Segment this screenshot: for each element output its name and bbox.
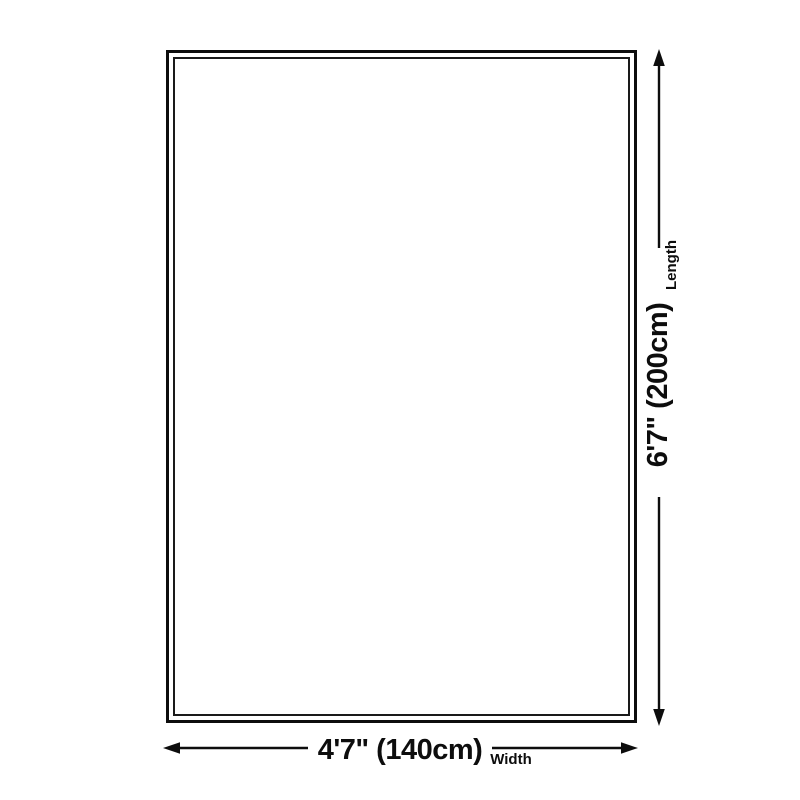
arrow-down-icon (653, 497, 665, 726)
rug-inner-outline (173, 57, 630, 716)
width-label: Width (486, 750, 536, 770)
arrow-up-icon (653, 49, 665, 248)
dimension-diagram: 6'7" (200cm) Length 4'7" (140cm) Width (0, 0, 800, 800)
width-value: 4'7" (140cm) (300, 733, 500, 767)
length-label: Length (662, 220, 682, 310)
rug-outline (166, 50, 637, 723)
arrow-left-icon (163, 742, 308, 754)
